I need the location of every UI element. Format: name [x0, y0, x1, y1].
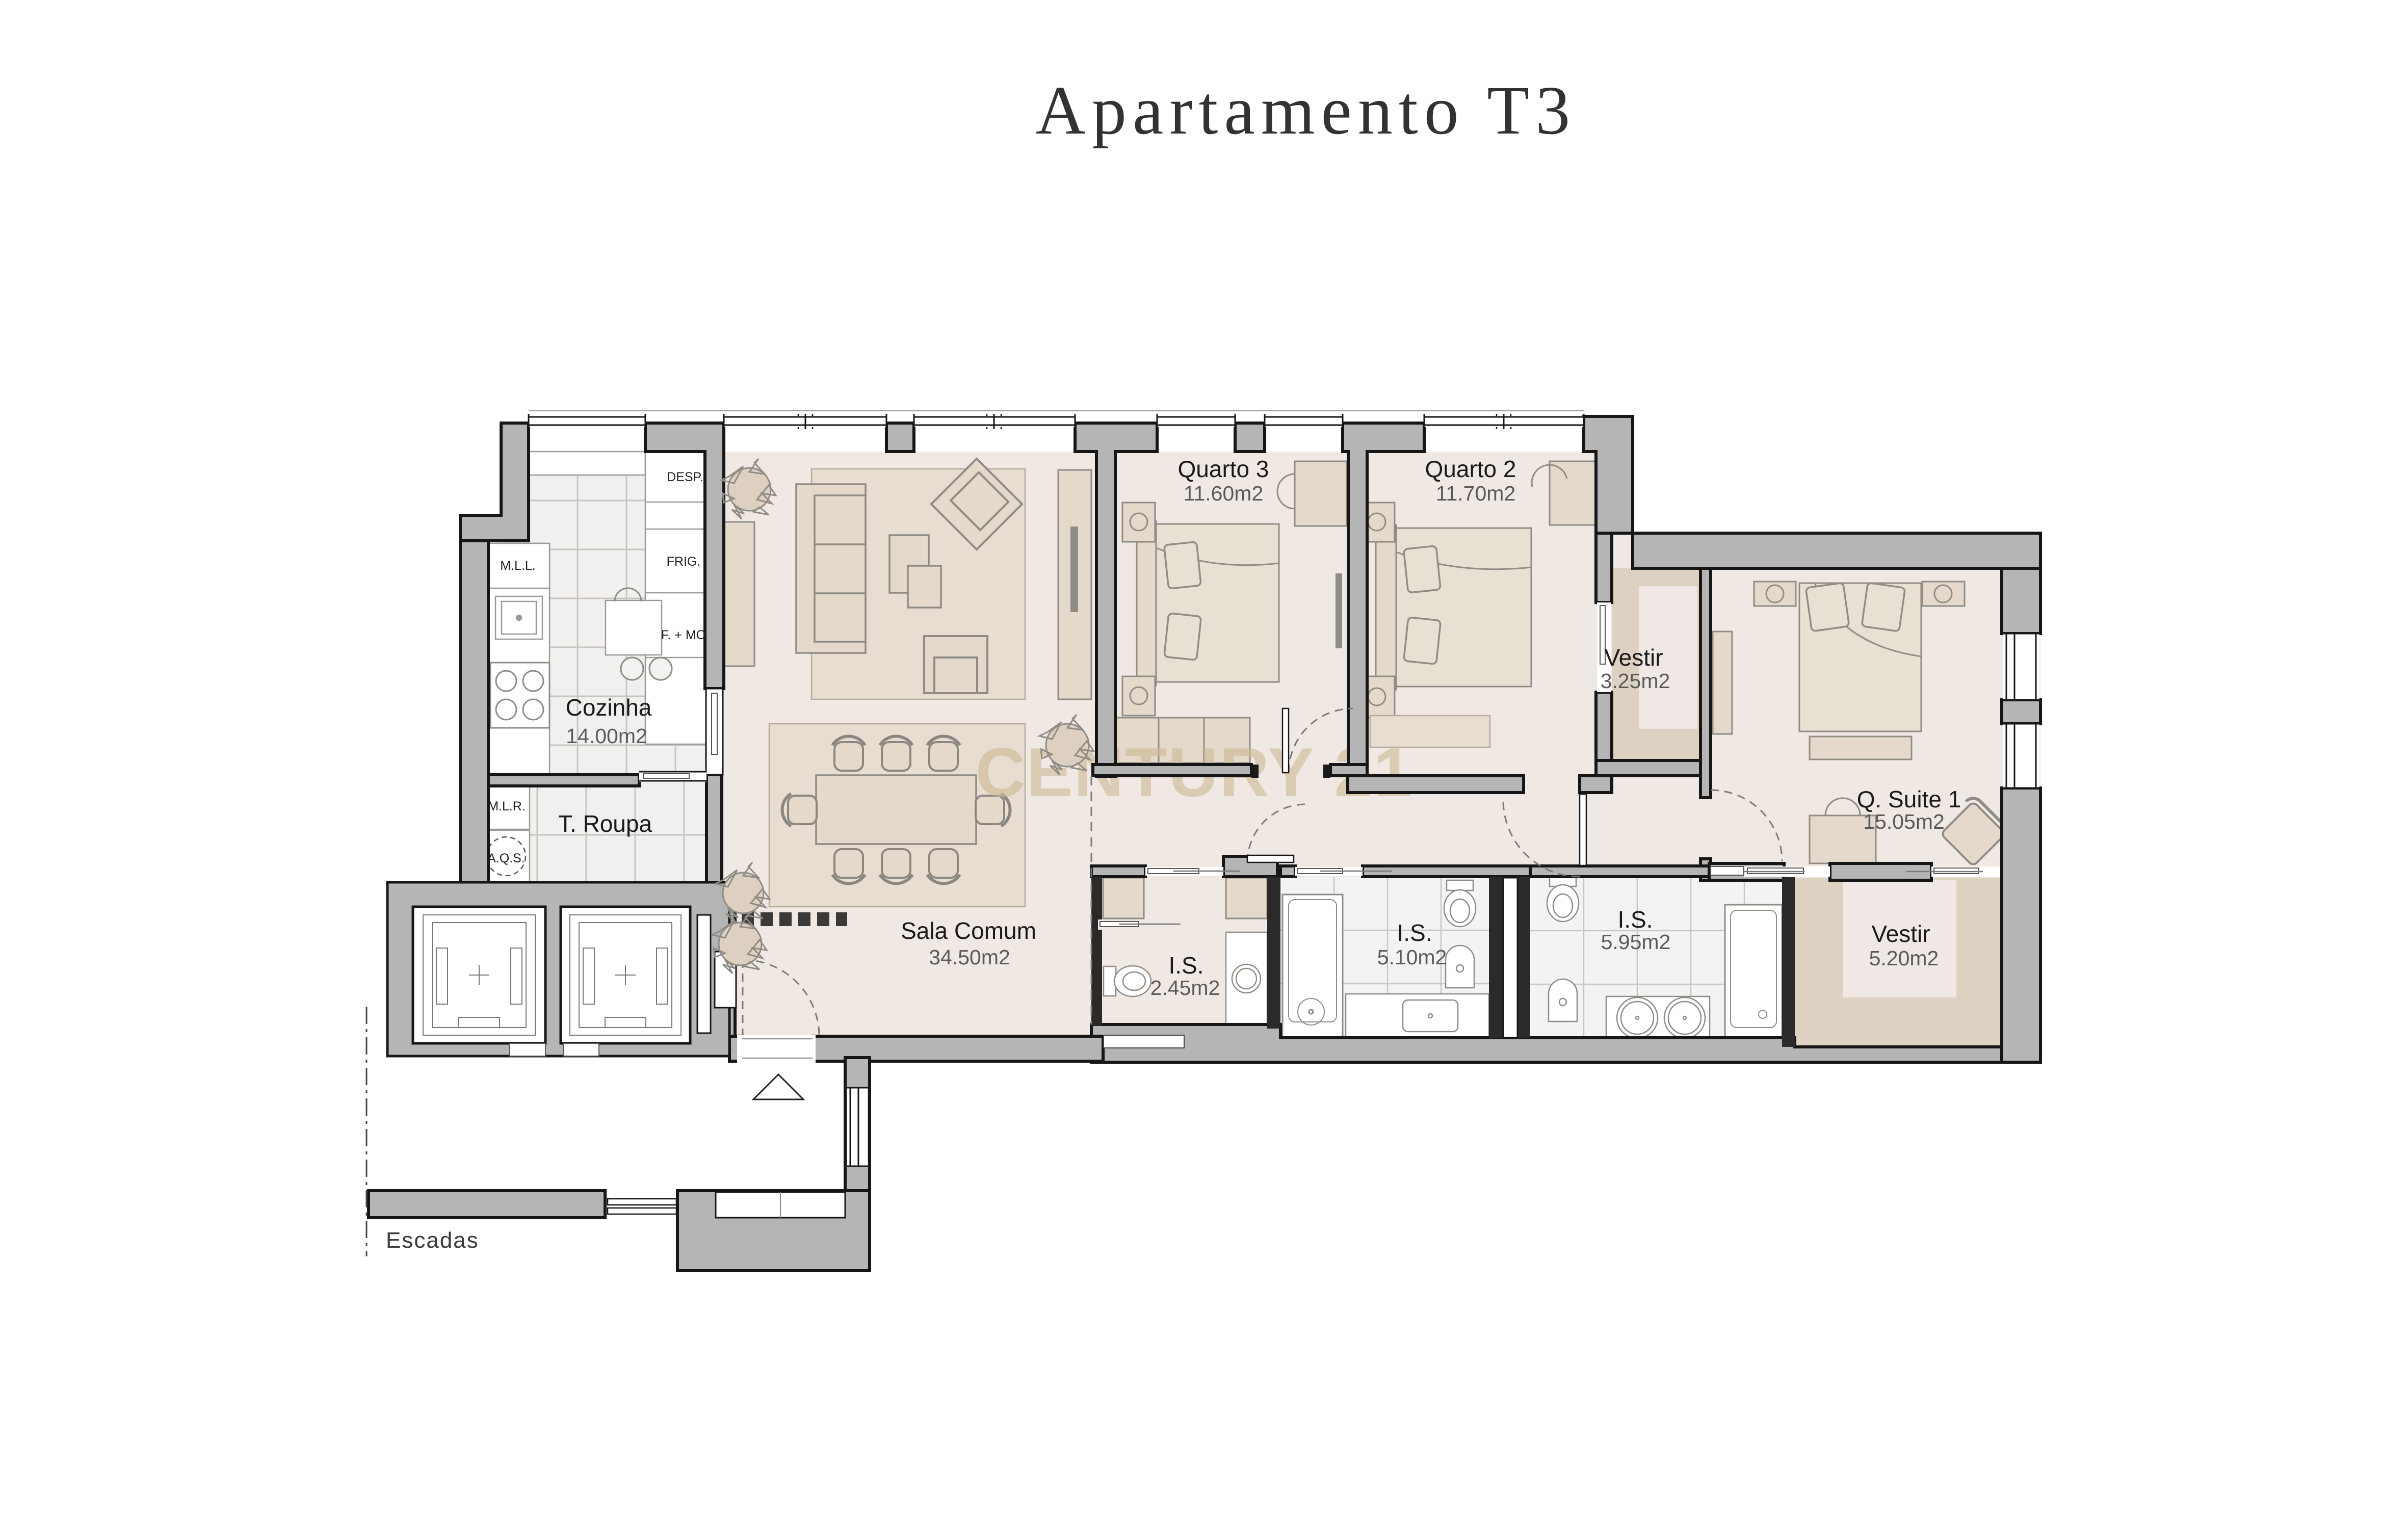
svg-text:11.60m2: 11.60m2 [1184, 482, 1264, 505]
svg-text:Quarto 3: Quarto 3 [1178, 456, 1269, 482]
svg-text:T. Roupa: T. Roupa [558, 810, 652, 837]
svg-text:Quarto 2: Quarto 2 [1425, 456, 1516, 482]
svg-text:5.95m2: 5.95m2 [1601, 930, 1671, 954]
svg-text:A.Q.S.: A.Q.S. [487, 851, 525, 865]
svg-text:5.10m2: 5.10m2 [1377, 945, 1447, 969]
svg-text:3.25m2: 3.25m2 [1601, 669, 1670, 693]
svg-text:15.05m2: 15.05m2 [1863, 810, 1945, 833]
svg-text:M.L.R.: M.L.R. [488, 799, 526, 813]
svg-text:Escadas: Escadas [386, 1228, 479, 1253]
svg-text:Vestir: Vestir [1871, 921, 1930, 947]
svg-text:Q. Suite 1: Q. Suite 1 [1857, 786, 1961, 812]
svg-text:34.50m2: 34.50m2 [929, 945, 1010, 969]
svg-text:Cozinha: Cozinha [566, 694, 652, 721]
svg-text:Vestir: Vestir [1604, 644, 1663, 671]
svg-text:FRIG.: FRIG. [667, 555, 701, 569]
svg-text:I.S.: I.S. [1168, 952, 1203, 979]
svg-text:I.S.: I.S. [1617, 906, 1653, 933]
svg-text:M.L.L.: M.L.L. [500, 559, 535, 573]
svg-text:2.45m2: 2.45m2 [1150, 976, 1220, 1000]
svg-text:I.S.: I.S. [1397, 919, 1432, 946]
svg-text:11.70m2: 11.70m2 [1436, 482, 1516, 505]
svg-text:5.20m2: 5.20m2 [1869, 946, 1939, 970]
svg-text:Apartamento T3: Apartamento T3 [1036, 72, 1577, 149]
svg-text:Sala Comum: Sala Comum [901, 917, 1036, 944]
svg-text:F. + MO: F. + MO [661, 628, 706, 642]
svg-text:14.00m2: 14.00m2 [566, 724, 647, 748]
svg-text:DESP.: DESP. [667, 470, 703, 484]
